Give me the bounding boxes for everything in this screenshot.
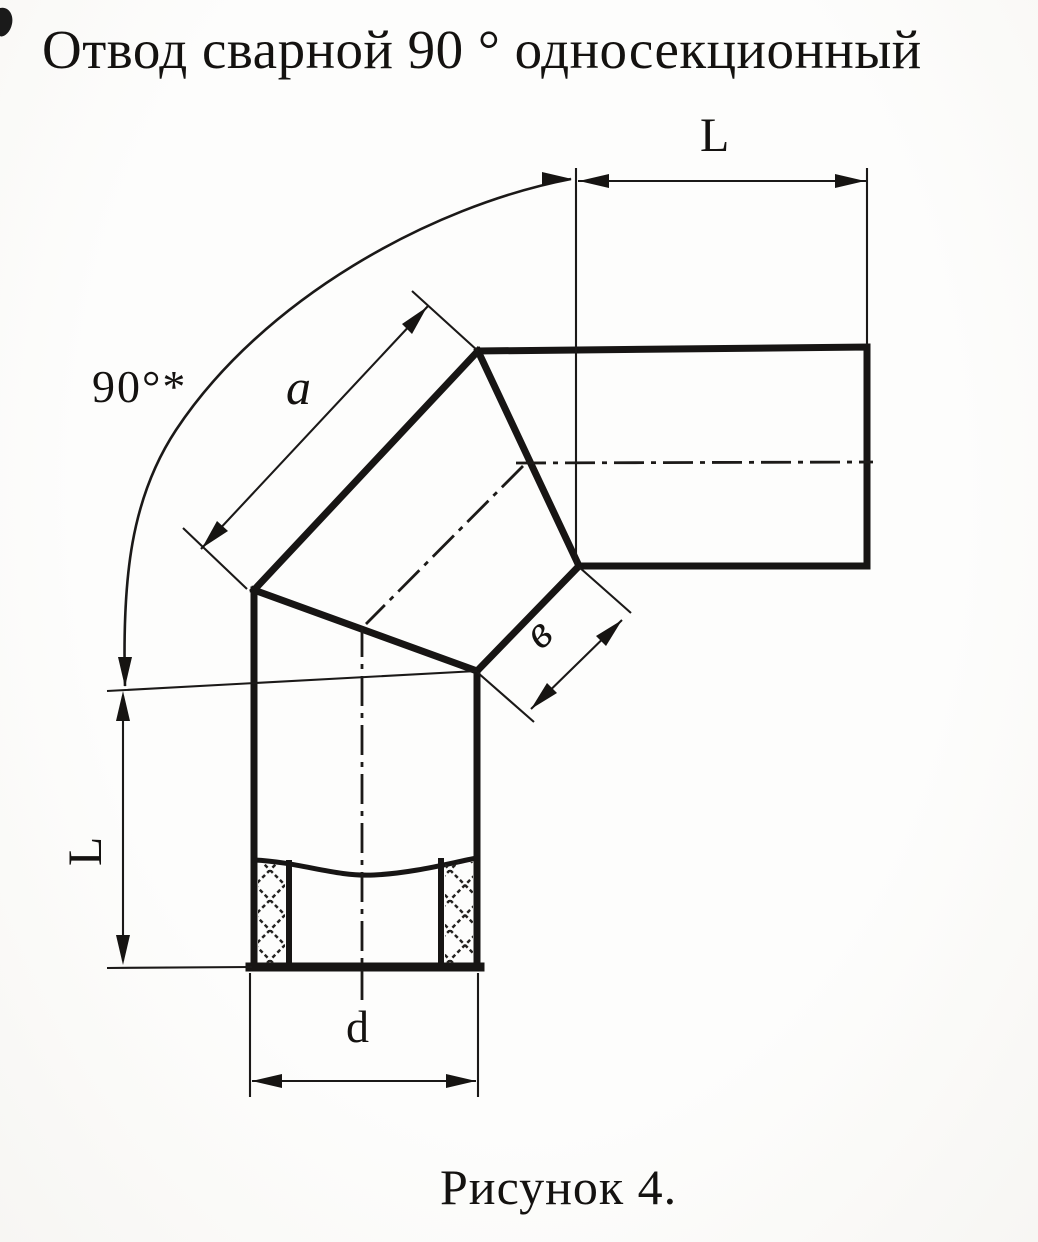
dimension-label-top-length: L [700,112,729,160]
dimension-a [183,291,478,589]
elbow-body [250,347,867,967]
scan-artifact [0,8,12,37]
drawing-sheet: Отвод сварной 90 ° односекционный L L 90… [0,0,1038,1242]
dimension-label-left-length: L [62,837,110,866]
dimension-label-a: a [286,362,311,412]
angle-dimension-arc [118,172,572,687]
dimension-label-d: d [346,1004,369,1050]
figure-caption: Рисунок 4. [440,1162,677,1212]
drawing-title: Отвод сварной 90 ° односекционный [42,22,922,77]
dimension-top-length [576,168,867,564]
dimension-label-angle: 90°* [92,364,187,410]
